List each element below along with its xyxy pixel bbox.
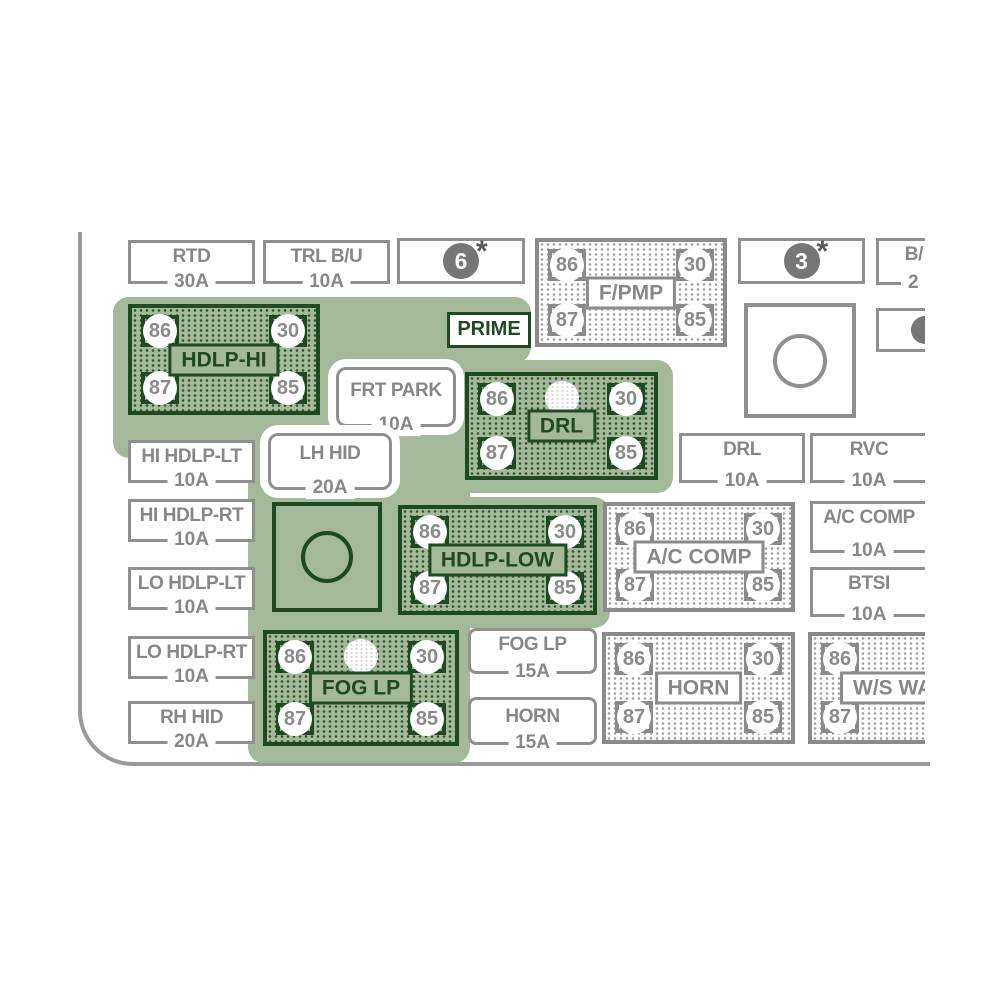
fuse-hi-hdlp-rt: HI HDLP-RT 10A [128, 499, 255, 542]
pin-87: 87 [616, 569, 654, 601]
pin-87: 87 [141, 372, 179, 404]
fuse-ac-comp: A/C COMP 10A [810, 501, 925, 553]
fuse-label: FRT PARK [339, 380, 453, 402]
pin-85: 85 [607, 437, 645, 469]
fuse-amp: 30A [167, 271, 216, 293]
fuse-label: RVC [813, 439, 925, 461]
badge-number-circle-partial [911, 316, 925, 344]
fuse-amp: 10A [167, 666, 216, 688]
pin-87: 87 [276, 703, 314, 735]
fuse-label: BTSI [813, 573, 925, 595]
fuse-label: RH HID [131, 707, 252, 729]
fuse-amp: 10A [845, 604, 894, 626]
badge-number-circle: 3 [784, 243, 820, 279]
pin-86: 86 [548, 249, 586, 281]
pin-87: 87 [615, 701, 653, 733]
fuse-label: HI HDLP-LT [131, 446, 252, 468]
relay-label: HDLP-LOW [428, 544, 567, 577]
pin-85: 85 [546, 572, 584, 604]
fuse-amp: 10A [845, 470, 894, 492]
relay-label: HDLP-HI [168, 343, 279, 376]
pin-30: 30 [408, 641, 446, 673]
fuse-rh-hid: RH HID 20A [128, 701, 255, 744]
fuse-lo-hdlp-rt: LO HDLP-RT 10A [128, 636, 255, 679]
fuse-label: DRL [682, 439, 802, 461]
socket-circle [773, 334, 827, 388]
relay-label: DRL [527, 410, 596, 443]
relay-label: W/S WA [840, 672, 925, 705]
fuse-drl: DRL 10A [679, 433, 805, 483]
pin-30: 30 [607, 383, 645, 415]
relay-socket-grey [744, 303, 856, 418]
fuse-label: HI HDLP-RT [131, 505, 252, 527]
fuse-amp: 10A [845, 540, 894, 562]
pin-87: 87 [478, 437, 516, 469]
pin-86: 86 [615, 643, 653, 675]
relay-ac-comp: 86 30 87 85 A/C COMP [603, 502, 795, 612]
fuse-amp: 10A [167, 470, 216, 492]
pin-85: 85 [269, 372, 307, 404]
pin-87: 87 [548, 304, 586, 336]
fuse-label: B/ [879, 244, 925, 266]
fuse-amp: 10A [167, 529, 216, 551]
fuse-amp: 20A [167, 731, 216, 753]
relay-hdlp-hi: 86 30 87 85 HDLP-HI [128, 304, 320, 415]
relay-label: HORN [655, 672, 743, 705]
pin-86: 86 [478, 383, 516, 415]
pin-87: 87 [821, 701, 859, 733]
fuse-amp: 10A [167, 597, 216, 619]
badge-number-circle: 6 [443, 243, 479, 279]
asterisk-mark: * [476, 235, 488, 269]
relay-fpmp: 86 30 87 85 F/PMP [535, 238, 727, 347]
fuse-amp: 15A [508, 661, 557, 683]
fuse-amp: 20A [306, 477, 355, 499]
underhood-fuse-box-diagram: RTD 30A TRL B/U 10A 6 * 86 30 87 85 F/PM… [0, 0, 1000, 1000]
fuse-label: HORN [471, 706, 594, 728]
pin-87: 87 [411, 572, 449, 604]
pin-30: 30 [676, 249, 714, 281]
fuse-amp: 10A [302, 271, 351, 293]
fuse-label: FOG LP [471, 634, 594, 656]
fuse-label: TRL B/U [266, 246, 387, 268]
relay-label: FOG LP [309, 672, 413, 705]
fuse-label: LO HDLP-RT [131, 642, 252, 664]
fuse-lo-hdlp-lt: LO HDLP-LT 10A [128, 567, 255, 610]
fuse-amp: 2 [901, 272, 926, 294]
fuse-trl-bu: TRL B/U 10A [263, 240, 390, 284]
fuse-label: A/C COMP [813, 507, 925, 529]
fuse-label: RTD [131, 246, 252, 268]
fuse-fog-lp: FOG LP 15A [468, 628, 597, 674]
fuse-frt-park: FRT PARK 10A [336, 367, 456, 427]
fuse-rtd: RTD 30A [128, 240, 255, 284]
relay-label: A/C COMP [634, 541, 765, 574]
pin-85: 85 [744, 701, 782, 733]
fuse-label: LH HID [271, 443, 389, 465]
badge-box-6: 6 * [397, 238, 525, 284]
fuse-lh-hid: LH HID 20A [268, 433, 392, 490]
pin-85: 85 [676, 304, 714, 336]
fuse-btsi: BTSI 10A [810, 567, 925, 617]
pin-86: 86 [276, 641, 314, 673]
fuse-rvc: RVC 10A [810, 433, 925, 483]
fuse-bu-partial: B/ 2 [876, 238, 925, 285]
fuse-amp: 10A [718, 470, 767, 492]
relay-hdlp-low: 86 30 87 85 HDLP-LOW [398, 505, 597, 615]
fuse-label: LO HDLP-LT [131, 573, 252, 595]
socket-circle [301, 531, 353, 583]
asterisk-mark: * [817, 235, 829, 269]
relay-fog-lp: 86 30 87 85 FOG LP [263, 630, 459, 746]
relay-drl: 86 30 87 85 DRL [465, 372, 658, 480]
relay-horn: 86 30 87 85 HORN [602, 632, 795, 744]
fuse-horn: HORN 15A [468, 697, 597, 745]
prime-label-box: PRIME [447, 312, 531, 348]
pin-86: 86 [821, 643, 859, 675]
relay-label: F/PMP [586, 276, 676, 309]
fuse-amp: 15A [508, 732, 557, 754]
badge-box-partial [876, 308, 925, 352]
pin-30: 30 [744, 643, 782, 675]
pin-85: 85 [744, 569, 782, 601]
mount-hole [344, 639, 378, 673]
relay-ws-wa-partial: 86 87 W/S WA [808, 632, 925, 744]
fuse-hi-hdlp-lt: HI HDLP-LT 10A [128, 440, 255, 483]
relay-socket-green [272, 502, 382, 612]
pin-85: 85 [408, 703, 446, 735]
badge-box-3: 3 * [738, 238, 865, 284]
